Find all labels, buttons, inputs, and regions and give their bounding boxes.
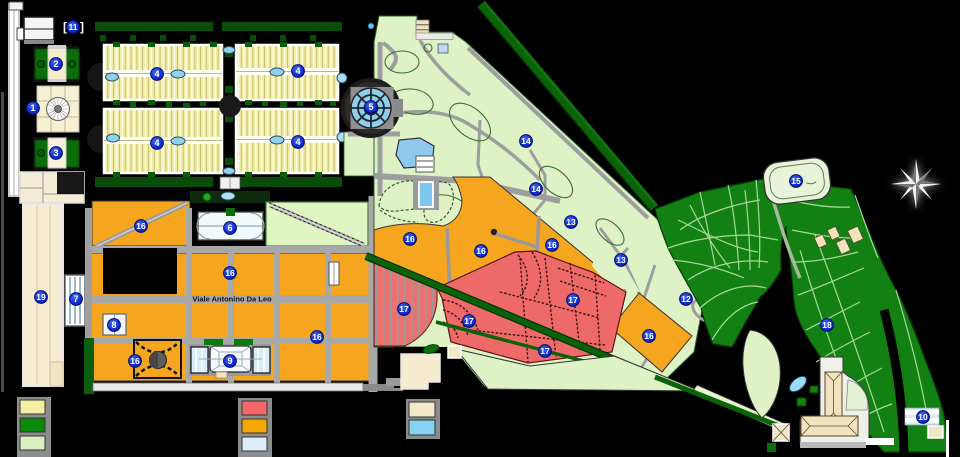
svg-text:]: ] — [80, 20, 84, 34]
svg-text:Viale Antonino Da Leo: Viale Antonino Da Leo — [192, 295, 272, 304]
svg-text:4: 4 — [295, 137, 300, 147]
svg-text:10: 10 — [918, 412, 928, 422]
svg-text:16: 16 — [136, 221, 146, 231]
svg-text:14: 14 — [521, 136, 531, 146]
svg-text:16: 16 — [225, 268, 235, 278]
svg-text:[: [ — [63, 20, 67, 34]
svg-text:16: 16 — [547, 240, 557, 250]
svg-text:17: 17 — [568, 295, 578, 305]
svg-text:13: 13 — [566, 217, 576, 227]
svg-text:15: 15 — [791, 176, 801, 186]
svg-text:16: 16 — [312, 332, 322, 342]
svg-text:16: 16 — [476, 246, 486, 256]
svg-text:17: 17 — [540, 346, 550, 356]
svg-text:12: 12 — [681, 294, 691, 304]
svg-text:16: 16 — [130, 356, 140, 366]
svg-text:4: 4 — [295, 66, 300, 76]
svg-text:17: 17 — [464, 316, 474, 326]
svg-text:13: 13 — [616, 255, 626, 265]
svg-text:5: 5 — [368, 102, 373, 112]
svg-text:7: 7 — [73, 294, 78, 304]
svg-text:9: 9 — [227, 356, 232, 366]
svg-text:3: 3 — [53, 148, 58, 158]
svg-text:4: 4 — [154, 69, 159, 79]
svg-text:14: 14 — [531, 184, 541, 194]
svg-text:16: 16 — [405, 234, 415, 244]
svg-text:11: 11 — [69, 22, 78, 32]
svg-text:8: 8 — [111, 320, 116, 330]
svg-text:16: 16 — [644, 331, 654, 341]
svg-text:17: 17 — [399, 304, 409, 314]
svg-text:18: 18 — [822, 320, 832, 330]
svg-text:6: 6 — [227, 223, 232, 233]
svg-text:2: 2 — [53, 59, 58, 69]
svg-text:4: 4 — [154, 138, 159, 148]
svg-text:19: 19 — [36, 292, 46, 302]
svg-text:1: 1 — [30, 103, 35, 113]
